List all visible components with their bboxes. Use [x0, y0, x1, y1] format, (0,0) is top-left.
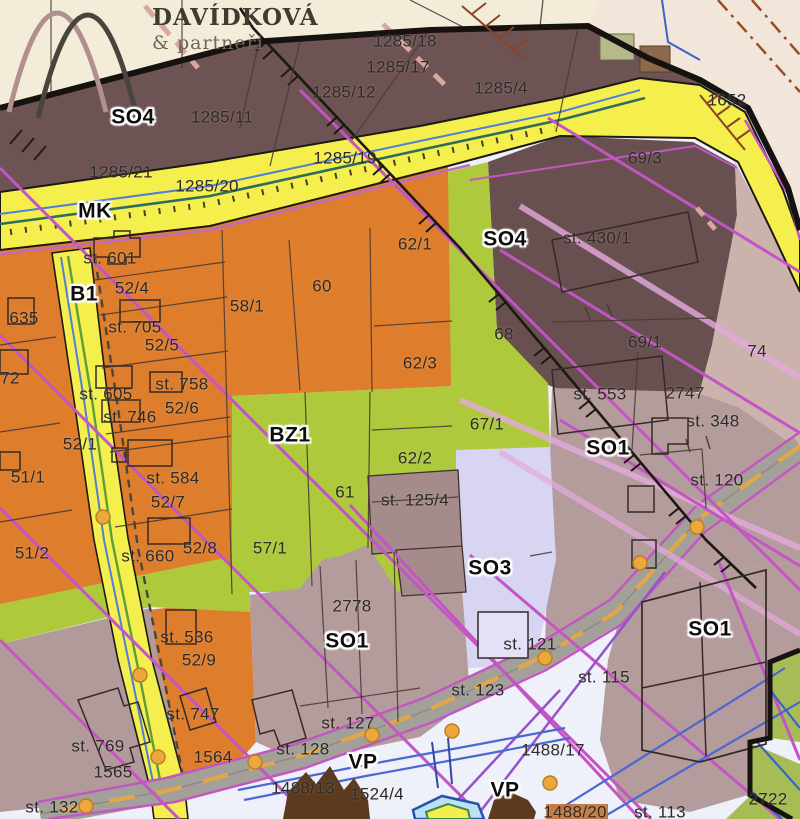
logo-title: DAVÍDKOVÁ: [152, 4, 319, 31]
zoning-map: DAVÍDKOVÁ & partneři SO4MKB1SO4BZ1SO1SO1…: [0, 0, 800, 819]
parcel-highlight: [546, 804, 608, 819]
logo-subtitle: & partneři: [152, 32, 319, 54]
logo: DAVÍDKOVÁ & partneři: [152, 4, 319, 54]
map-canvas: [0, 0, 800, 819]
